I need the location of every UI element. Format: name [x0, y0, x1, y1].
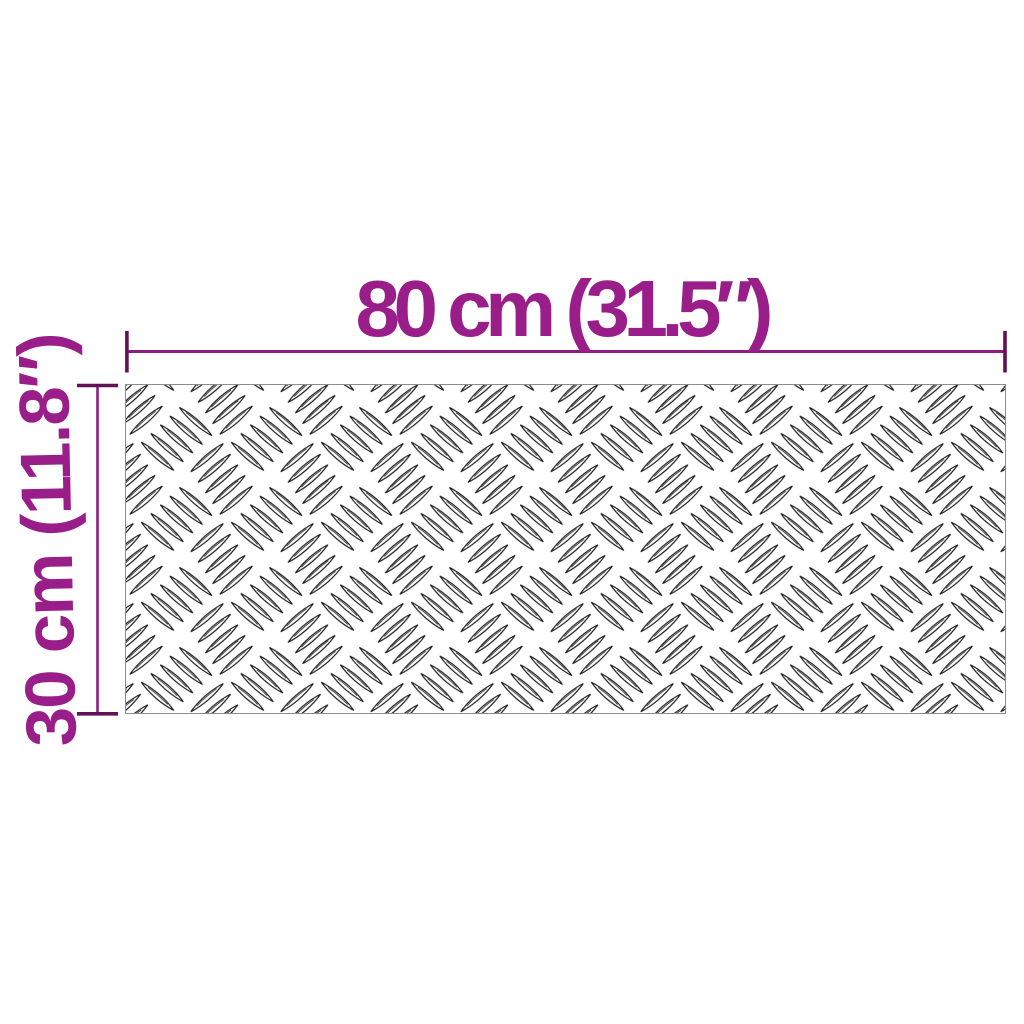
svg-text:80 cm (31.5″): 80 cm (31.5″) — [356, 264, 774, 353]
svg-text:30 cm (11.8″): 30 cm (11.8″) — [4, 332, 92, 748]
